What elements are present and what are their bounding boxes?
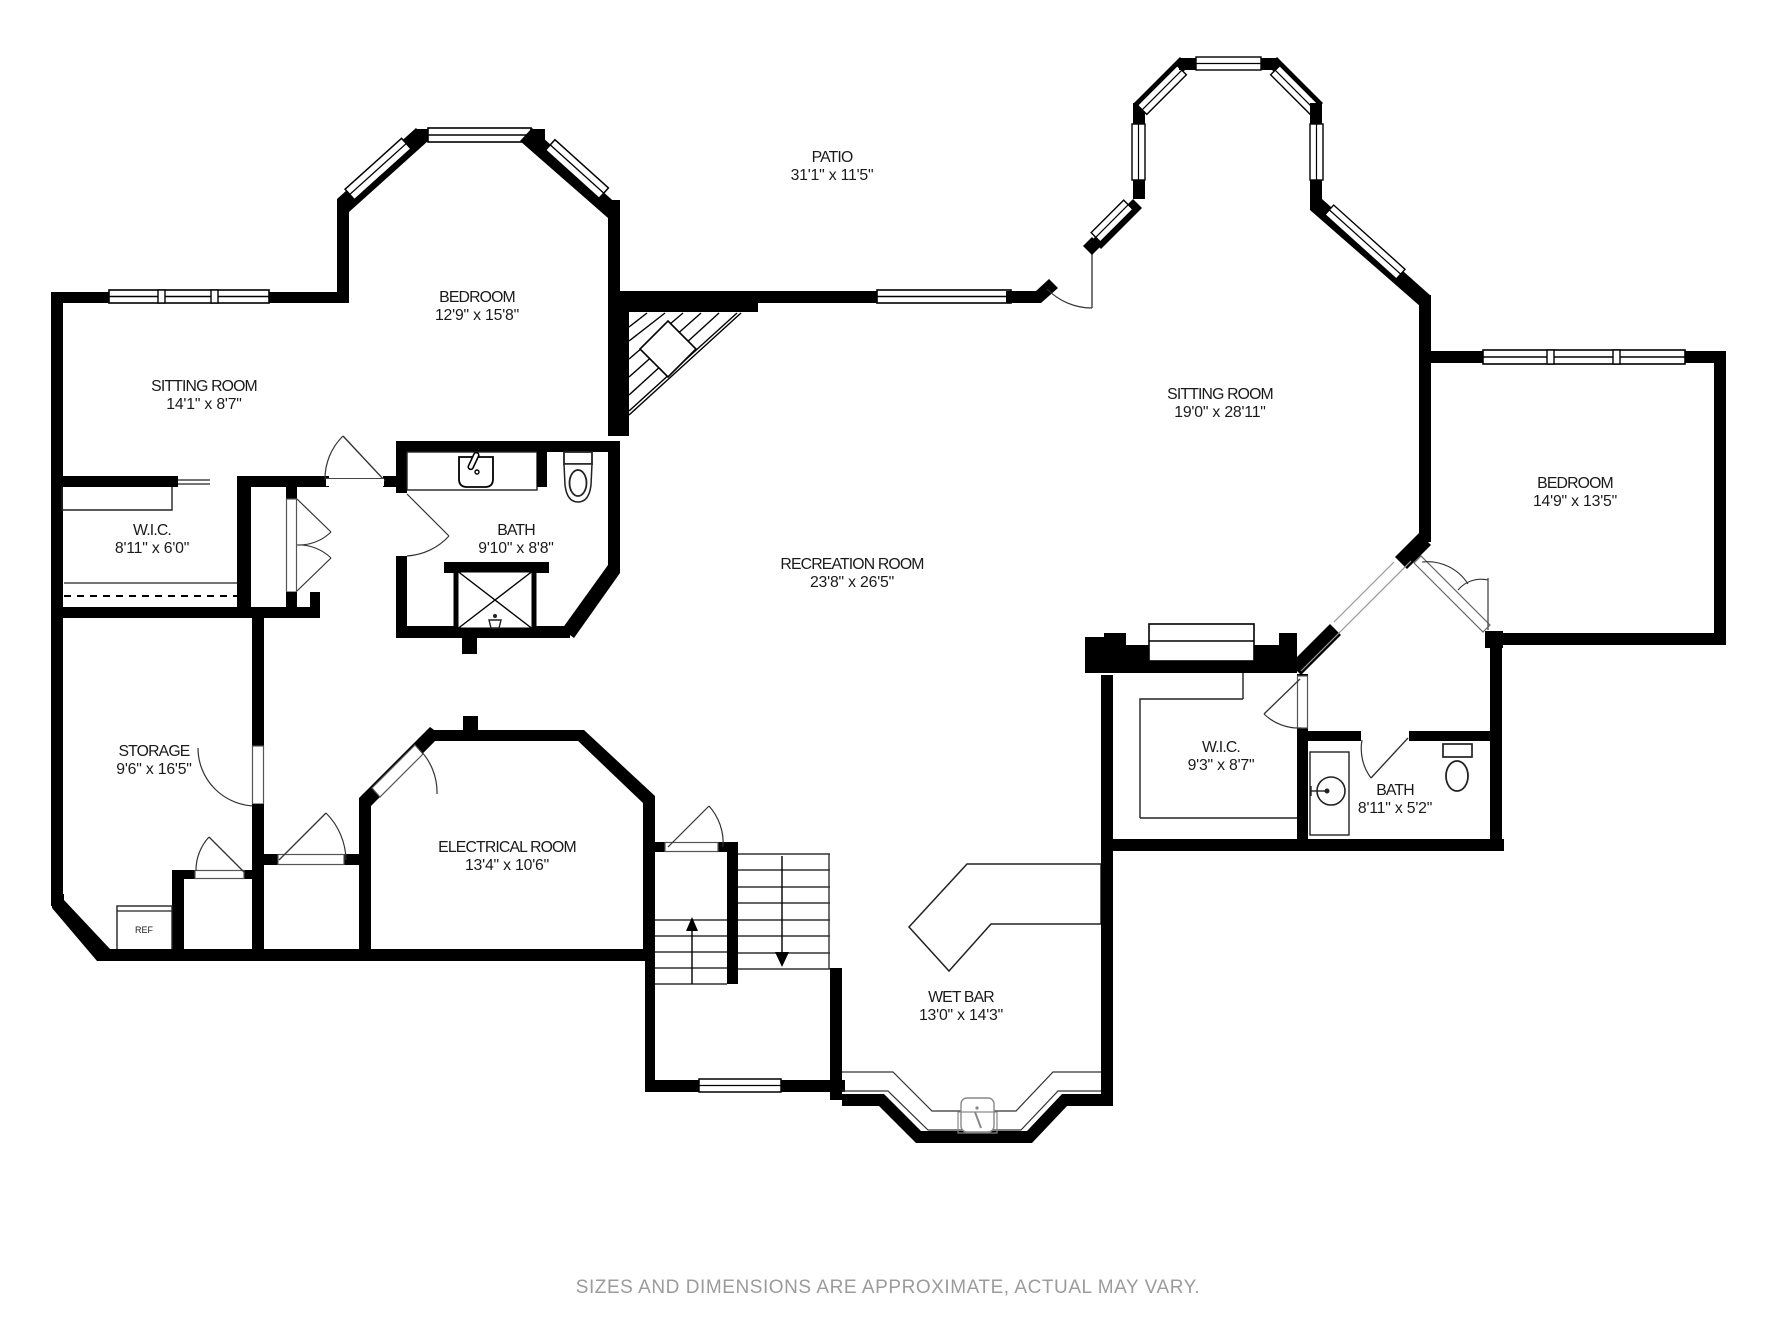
svg-text:STORAGE: STORAGE <box>118 743 189 760</box>
svg-text:23'8" x 26'5": 23'8" x 26'5" <box>810 574 894 591</box>
svg-text:SITTING ROOM: SITTING ROOM <box>151 378 257 395</box>
svg-text:BEDROOM: BEDROOM <box>439 289 515 306</box>
svg-text:SIZES AND DIMENSIONS ARE APPRO: SIZES AND DIMENSIONS ARE APPROXIMATE, AC… <box>576 1277 1201 1298</box>
svg-text:13'4" x 10'6": 13'4" x 10'6" <box>465 857 549 874</box>
svg-text:SITTING ROOM: SITTING ROOM <box>1167 386 1273 403</box>
svg-text:19'0" x 28'11": 19'0" x 28'11" <box>1174 404 1265 421</box>
svg-text:8'11" x 6'0": 8'11" x 6'0" <box>115 540 189 557</box>
svg-text:W.I.C.: W.I.C. <box>1202 739 1240 756</box>
svg-text:9'3" x 8'7": 9'3" x 8'7" <box>1188 757 1255 774</box>
svg-text:13'0" x 14'3": 13'0" x 14'3" <box>919 1007 1003 1024</box>
svg-text:ELECTRICAL ROOM: ELECTRICAL ROOM <box>438 839 576 856</box>
svg-text:31'1" x 11'5": 31'1" x 11'5" <box>791 167 874 184</box>
svg-text:9'6" x 16'5": 9'6" x 16'5" <box>116 761 191 778</box>
svg-text:14'9" x 13'5": 14'9" x 13'5" <box>1533 493 1617 510</box>
svg-text:PATIO: PATIO <box>812 149 853 166</box>
svg-text:12'9" x 15'8": 12'9" x 15'8" <box>435 307 519 324</box>
svg-text:BATH: BATH <box>1376 782 1414 799</box>
svg-text:REF: REF <box>135 925 154 935</box>
svg-text:W.I.C.: W.I.C. <box>133 522 171 539</box>
svg-text:8'11" x 5'2": 8'11" x 5'2" <box>1358 800 1432 817</box>
svg-text:BEDROOM: BEDROOM <box>1537 475 1613 492</box>
svg-text:WET BAR: WET BAR <box>928 989 994 1006</box>
svg-text:9'10" x 8'8": 9'10" x 8'8" <box>478 540 553 557</box>
svg-text:14'1" x 8'7": 14'1" x 8'7" <box>166 396 241 413</box>
svg-text:BATH: BATH <box>497 522 535 539</box>
svg-text:RECREATION ROOM: RECREATION ROOM <box>780 556 923 573</box>
